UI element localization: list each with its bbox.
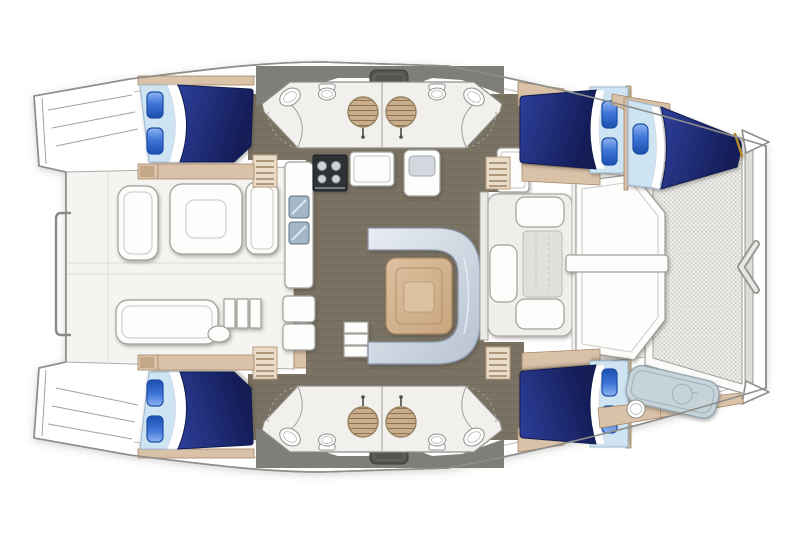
louver-hatch xyxy=(486,157,510,189)
louver-hatch xyxy=(253,347,277,379)
deck-hatch-round xyxy=(627,400,645,418)
heads-port-pair xyxy=(262,82,502,148)
toilet xyxy=(319,84,336,100)
pillow xyxy=(633,124,648,154)
shower-round-teak xyxy=(348,97,378,127)
shower-round-teak xyxy=(386,97,416,127)
cabin-shelf xyxy=(138,164,254,179)
cockpit-pouf xyxy=(208,326,230,342)
cockpit-bench-stbd xyxy=(116,300,218,344)
saloon-cabinet-aft xyxy=(283,324,315,350)
helm-step xyxy=(237,299,248,328)
duvet xyxy=(177,85,253,162)
windlass-bar xyxy=(566,255,668,272)
catamaran-plan-svg xyxy=(0,0,800,534)
galley-counter-fwd xyxy=(350,152,394,186)
pillow xyxy=(602,138,617,165)
pillow xyxy=(147,128,163,154)
duvet xyxy=(520,90,596,169)
saloon-cabinet-aft xyxy=(283,296,315,322)
helm-step xyxy=(224,299,235,328)
cockpit xyxy=(56,167,294,369)
stove xyxy=(313,155,347,191)
cockpit-seating-forward-group xyxy=(118,182,278,260)
floor-plan xyxy=(0,0,800,534)
helm-step xyxy=(250,299,261,328)
louver-hatch xyxy=(253,155,277,187)
cockpit-table xyxy=(170,184,242,254)
cabin-stbd-fwd-bed xyxy=(518,349,631,452)
louver-hatch xyxy=(486,347,510,379)
heads-stbd-pair xyxy=(262,386,502,452)
forward-cockpit-seat xyxy=(488,194,572,336)
bow-crossbeam xyxy=(745,134,753,400)
saloon-forward-wall xyxy=(480,192,488,340)
pillow xyxy=(147,92,163,118)
toilet xyxy=(429,84,446,100)
anchor-locker xyxy=(566,174,668,360)
companionway-steps xyxy=(344,322,368,357)
